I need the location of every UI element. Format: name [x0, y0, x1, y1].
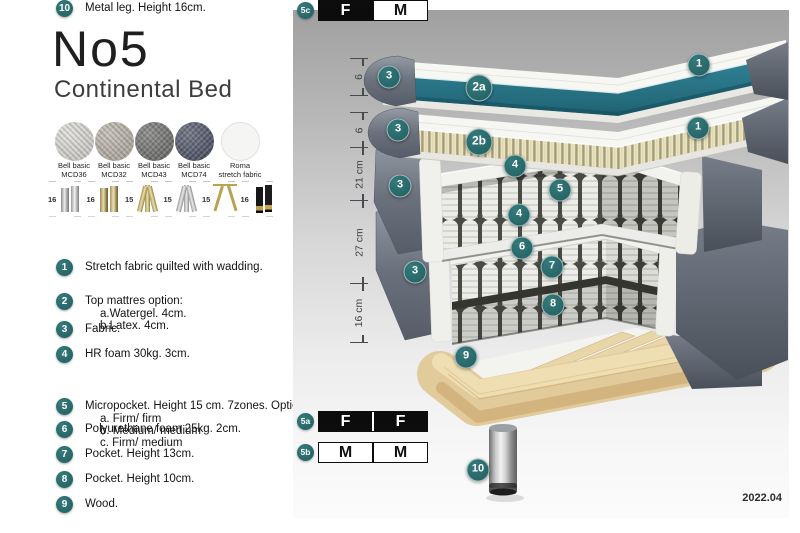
- feature-number-badge: 9: [56, 496, 73, 513]
- feature-text: HR foam 30kg. 3cm.: [85, 346, 190, 361]
- feature-text: Pocket. Height 10cm.: [85, 471, 194, 486]
- leg-option: 15: [125, 181, 164, 217]
- firmness-row-badge: 5b: [297, 444, 314, 461]
- ruler-segment: 6: [350, 112, 368, 148]
- ruler-segment: 21 cm: [350, 147, 368, 201]
- feature-item: 3 Fabric.: [56, 321, 120, 338]
- diagram-callout: 1: [687, 117, 710, 140]
- fabric-swatch-circle: [221, 122, 260, 161]
- feature-text: Stretch fabric quilted with wadding.: [85, 259, 263, 274]
- leg-option: 16: [241, 181, 280, 217]
- version-label: 2022.04: [702, 492, 782, 504]
- feature-text: Metal leg. Height 16cm.: [85, 0, 206, 15]
- feature-text: Wood.: [85, 496, 118, 511]
- fabric-swatch-circle: [55, 122, 94, 161]
- feature-number-badge: 8: [56, 471, 73, 488]
- leg-option: 16: [87, 181, 126, 217]
- firmness-row-badge: 5a: [297, 413, 314, 430]
- feature-text: Fabric.: [85, 321, 120, 336]
- leg-options: 16 16 15 15 15 16: [48, 181, 279, 217]
- firmness-cell: M: [319, 443, 372, 462]
- diagram-callout: 6: [511, 237, 534, 260]
- leg-icon: [59, 185, 83, 213]
- firmness-cell: F: [319, 412, 372, 431]
- feature-item: 7 Pocket. Height 13cm.: [56, 446, 194, 463]
- leg-height-label: 16: [48, 195, 59, 204]
- firmness-row: 5b M M: [297, 442, 428, 463]
- firmness-cells: F M: [318, 0, 428, 21]
- diagram-callout: 3: [387, 119, 410, 142]
- firmness-row: 5a F F: [297, 411, 428, 432]
- firmness-row-badge: 5c: [297, 2, 314, 19]
- ruler-segment: 6: [350, 58, 368, 96]
- fabric-swatch: Bell basic MCD43: [134, 122, 174, 179]
- feature-item: 4 HR foam 30kg. 3cm.: [56, 346, 190, 363]
- firmness-cell: M: [374, 1, 427, 20]
- leg-height-label: 16: [87, 195, 98, 204]
- diagram-callout: 3: [378, 66, 401, 89]
- firmness-cell: F: [319, 1, 372, 20]
- feature-number-badge: 6: [56, 421, 73, 438]
- feature-number-badge: 2: [56, 293, 73, 310]
- fabric-swatch-code: MCD74: [170, 170, 218, 179]
- fabric-swatch-label: Roma: [216, 161, 264, 170]
- leg-option: 15: [202, 181, 241, 217]
- diagram-callout: 3: [404, 261, 427, 284]
- diagram-callout: 2a: [466, 75, 493, 102]
- diagram-callout: 1: [688, 54, 711, 77]
- fabric-swatch-circle: [135, 122, 174, 161]
- fabric-swatch-circle: [175, 122, 214, 161]
- firmness-cell: M: [374, 443, 427, 462]
- fabric-swatch: Bell basic MCD74: [174, 122, 214, 179]
- diagram-callout: 5: [549, 179, 572, 202]
- feature-item: 8 Pocket. Height 10cm.: [56, 471, 194, 488]
- feature-item: 9 Wood.: [56, 496, 118, 513]
- leg-icon: [252, 185, 276, 213]
- leg-icon: [175, 185, 199, 213]
- fabric-swatch: Bell basic MCD36: [54, 122, 94, 179]
- feature-item: 6 Polyurethane foam 25kg. 2cm.: [56, 421, 241, 438]
- feature-number-badge: 4: [56, 346, 73, 363]
- diagram-callout: 4: [504, 155, 527, 178]
- diagram-callout: 4: [508, 204, 531, 227]
- ruler-segment: 16 cm: [350, 283, 368, 343]
- firmness-row: 5c F M: [297, 0, 428, 21]
- feature-number-badge: 10: [56, 0, 73, 17]
- fabric-swatch: Bell basic MCD32: [94, 122, 134, 179]
- feature-number-badge: 3: [56, 321, 73, 338]
- feature-text: Pocket. Height 13cm.: [85, 446, 194, 461]
- fabric-swatches: Bell basic MCD36 Bell basic MCD32 Bell b…: [54, 122, 260, 179]
- firmness-cells: F F: [318, 411, 428, 432]
- firmness-cell: F: [374, 412, 427, 431]
- feature-subline: a.Watergel. 4cm.: [100, 308, 187, 320]
- leg-option: 15: [164, 181, 203, 217]
- diagram-callout: 2b: [466, 129, 493, 156]
- firmness-cells: M M: [318, 442, 428, 463]
- leg-height-label: 15: [164, 195, 175, 204]
- fabric-swatch-circle: [95, 122, 134, 161]
- diagram-callout: 9: [455, 346, 478, 369]
- leg-height-label: 15: [125, 195, 136, 204]
- ruler-segment: 27 cm: [350, 200, 368, 284]
- product-type: Continental Bed: [54, 76, 232, 104]
- feature-number-badge: 1: [56, 259, 73, 276]
- diagram-callout: 7: [541, 256, 564, 279]
- diagram-callout: 8: [542, 294, 565, 317]
- feature-number-badge: 5: [56, 398, 73, 415]
- feature-text: Polyurethane foam 25kg. 2cm.: [85, 421, 241, 436]
- leg-option: 16: [48, 181, 87, 217]
- leg-height-label: 16: [241, 195, 252, 204]
- feature-item: 10 Metal leg. Height 16cm.: [56, 0, 206, 17]
- fabric-swatch-label: Bell basic: [170, 161, 218, 170]
- diagram-callout: 3: [389, 175, 412, 198]
- fabric-swatch: Roma stretch fabric: [220, 122, 260, 179]
- leg-icon: [136, 185, 160, 213]
- feature-item: 1 Stretch fabric quilted with wadding.: [56, 259, 263, 276]
- leg-height-label: 15: [202, 195, 213, 204]
- leg-icon: [213, 184, 237, 214]
- leg-icon: [98, 185, 122, 213]
- feature-number-badge: 7: [56, 446, 73, 463]
- page-title: No5: [52, 20, 150, 78]
- diagram-callout: 10: [467, 459, 490, 482]
- fabric-swatch-code: stretch fabric: [216, 170, 264, 179]
